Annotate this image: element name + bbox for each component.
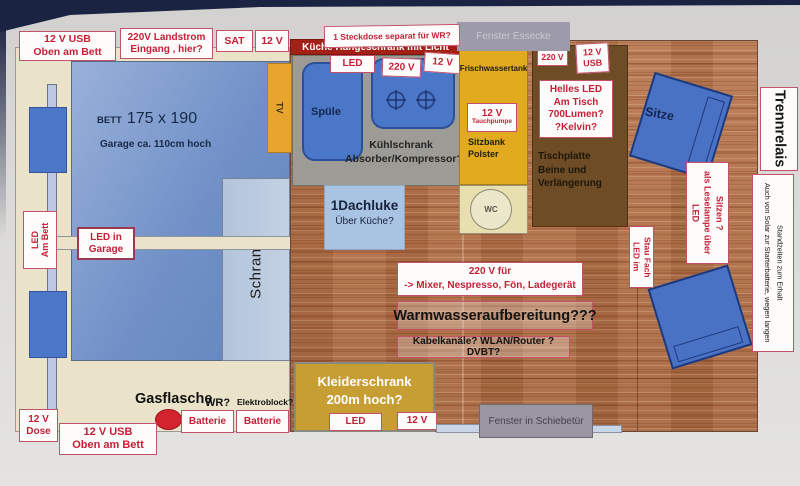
led-staufach-box: LED im Stau Fach (629, 226, 654, 288)
wardrobe-led-label: LED (329, 413, 382, 431)
sink-label: Spüle (311, 106, 341, 118)
batterie-box-1: Batterie (181, 410, 234, 433)
elektroblock-label: Elektroblock? (237, 397, 293, 407)
landstrom-box: 220V Landstrom Eingang , hier? (120, 28, 213, 59)
led-am-bett-label: LED Am Bett (23, 211, 57, 269)
photo-edge-left (0, 18, 6, 238)
sat-box: SAT (216, 30, 253, 52)
door-rail-left (436, 424, 482, 433)
kitchen-12v-label: 12 V (423, 52, 461, 75)
top-12v-box: 12 V (255, 30, 289, 52)
table-12v-usb-label: 12 V USB (575, 42, 610, 74)
bed-word: BETT (97, 115, 122, 126)
trennrelais-box: Trennrelais (760, 87, 798, 171)
stove-burner-icon (417, 91, 435, 109)
batterie-box-2: Batterie (236, 410, 289, 433)
dose-12v-box: 12 V Dose (19, 409, 58, 442)
schrank-column: Schrank (222, 178, 290, 361)
solar-note-box: Auch von Solar zur Starterbatterie, wege… (752, 174, 794, 352)
tauchpumpe-label: Tauchpumpe (472, 119, 512, 126)
warmwasser-box: Warmwasseraufbereitung??? (397, 301, 593, 330)
usb-top-box: 12 V USB Oben am Bett (19, 31, 116, 61)
wc-label: WC (484, 205, 497, 214)
sitzbank-note: Sitzbank Polster (468, 137, 505, 160)
wr-label: WR? (205, 397, 230, 409)
tauchpumpe-box: 12 V Tauchpumpe (467, 103, 517, 132)
frischwassertank-label: Frischwassertank (459, 64, 528, 73)
helles-led-box: Helles LED Am Tisch 700Lumen? ?Kelvin? (539, 80, 613, 138)
door-rail-right (592, 425, 622, 433)
kabel-box: Kabelkanäle? WLAN/Router ? DVBT? (397, 336, 570, 358)
leselampe-box: LED als Leselampe über Sitzen ? (686, 162, 729, 264)
tv-label: TV (275, 102, 285, 114)
kitchen-220v-label: 220 V (382, 57, 422, 77)
fenster-essecke: Fenster Essecke (457, 22, 570, 51)
photographed-floorplan: TV Schrank BETT 175 x 190 Garage ca. 110… (0, 0, 800, 486)
led-am-bett-box: LED Am Bett (23, 211, 57, 269)
power-uses-box: 220 V für -> Mixer, Nespresso, Fön, Lade… (397, 262, 583, 296)
tv-strip: TV (267, 63, 292, 153)
tischplatte-note: Tischplatte Beine und Verlängerung (538, 150, 602, 191)
led-garage-box: LED in Garage (77, 227, 135, 260)
bed-size: 175 x 190 (127, 110, 197, 128)
dachluke-title: 1Dachluke (325, 198, 404, 213)
kitchen-led-label: LED (330, 55, 375, 73)
fenster-schiebetuer: Fenster in Schiebetür (479, 404, 593, 438)
plank-line-horizontal (462, 378, 757, 379)
stove-burner-icon (387, 91, 405, 109)
window-marker-lower (29, 291, 67, 358)
gas-bottle-icon (155, 409, 182, 430)
fridge-note: Kühlschrank Absorber/Kompressor? (345, 139, 457, 166)
gasflasche-label: Gasflasche (135, 391, 212, 407)
steckdose-wr-box: 1 Steckdose separat für WR? (324, 24, 460, 48)
window-marker-upper (29, 107, 67, 173)
usb-bottom-box: 12 V USB Oben am Bett (59, 423, 157, 455)
wardrobe-12v-label: 12 V (397, 412, 437, 430)
dachluke-box: 1Dachluke Über Küche? (324, 185, 405, 250)
garage-note: Garage ca. 110cm hoch (100, 139, 211, 150)
bed-label: BETT 175 x 190 (97, 110, 197, 128)
dachluke-sub: Über Küche? (325, 216, 404, 227)
wc-ellipse: WC (470, 189, 512, 230)
